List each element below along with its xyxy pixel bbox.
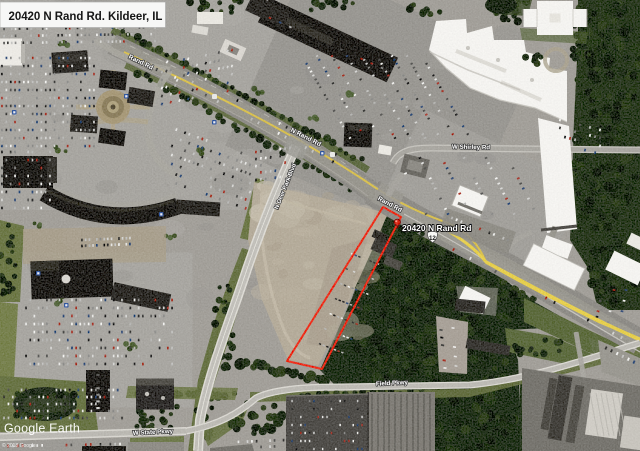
svg-text:W Shirley Rd: W Shirley Rd xyxy=(452,144,490,152)
svg-text:© 2018 Google: © 2018 Google xyxy=(2,442,36,449)
svg-text:Google Earth: Google Earth xyxy=(4,422,80,436)
svg-text:12: 12 xyxy=(429,235,436,242)
svg-text:20420 N Rand Rd. Kildeer, IL: 20420 N Rand Rd. Kildeer, IL xyxy=(9,11,163,23)
svg-text:20420 N Rand Rd: 20420 N Rand Rd xyxy=(402,223,471,233)
